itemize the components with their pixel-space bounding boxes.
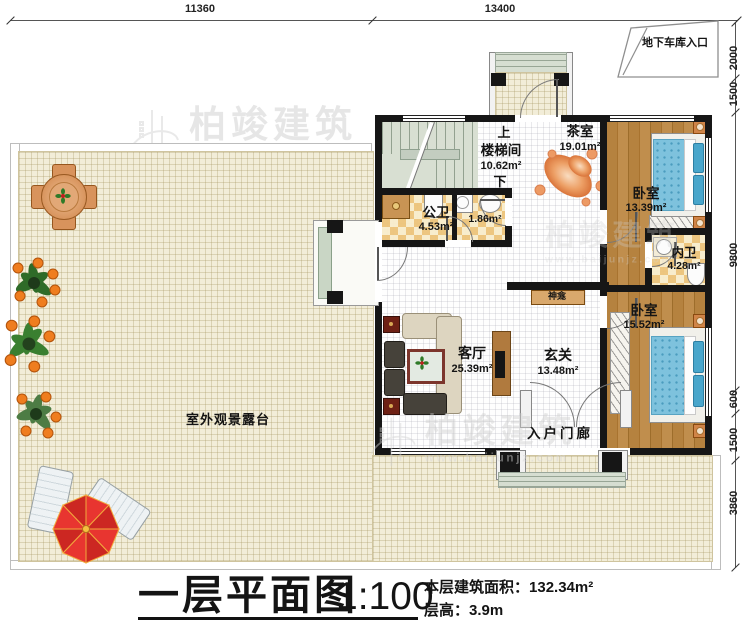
terrace-label: 室外观景露台 — [168, 413, 288, 427]
wall-foyer-north — [507, 282, 609, 290]
foyer-label: 玄关 — [528, 348, 588, 363]
coffee-table-plant-icon — [415, 356, 429, 370]
wall-innerbath-north — [645, 228, 712, 235]
stair-rail — [400, 149, 460, 160]
door-leaf — [556, 79, 558, 117]
floor-area-label: 本层建筑面积： — [424, 579, 529, 596]
entry-steps — [498, 472, 626, 488]
door-opening — [600, 210, 607, 244]
dim-top-right: 13400 — [450, 3, 550, 15]
pillow — [693, 375, 704, 407]
door-opening — [645, 242, 652, 268]
inner-bath-area: 4.28m² — [662, 261, 706, 272]
porch-column — [602, 452, 622, 472]
stair-up-label: 上 — [486, 126, 522, 140]
bedroom2-area: 15.52m² — [616, 320, 672, 332]
armchair — [403, 393, 447, 415]
foyer-area: 13.48m² — [528, 366, 588, 378]
porch-column — [500, 452, 520, 472]
dim-right-9800: 9800 — [728, 225, 742, 285]
window — [705, 138, 712, 212]
public-bath-area: 4.53m² — [412, 222, 460, 234]
bedroom1-area: 13.39m² — [620, 203, 672, 215]
watermark-brand: 柏竣建筑 — [189, 106, 357, 143]
dim-right-1500a: 1500 — [728, 64, 742, 124]
outdoor-table-set — [31, 164, 95, 228]
plant-icon — [2, 314, 58, 376]
stairwell-area: 10.62m² — [466, 161, 536, 173]
wall-bedroom2-north — [600, 285, 712, 292]
window — [610, 115, 694, 122]
floor-height-line: 层高：3.9m — [424, 599, 503, 620]
door-leaf — [635, 212, 637, 242]
side-table — [383, 316, 400, 333]
bay-window-glass — [318, 227, 332, 299]
garage-label: 地下车库入口 — [632, 38, 718, 50]
porch-post — [491, 73, 506, 86]
armchair — [384, 369, 405, 396]
inner-bath-label: 内卫 — [662, 247, 706, 260]
dim-top-left: 11360 — [150, 3, 250, 15]
armchair — [384, 341, 405, 368]
table-plant-icon — [55, 188, 71, 204]
bay-window-post — [327, 291, 343, 304]
stairwell-label: 楼梯间 — [464, 144, 538, 158]
bedroom1-label: 卧室 — [626, 187, 666, 201]
title-underline — [138, 617, 418, 620]
drawing-title: 一层平面图 — [138, 574, 358, 617]
door-leaf — [377, 247, 379, 280]
wall-bath-north — [380, 188, 512, 195]
entry-porch-label: 入户门廊 — [470, 427, 650, 441]
utility-area: 1.86m² — [462, 214, 508, 225]
public-bath-label: 公卫 — [412, 206, 460, 220]
living-room-area: 25.39m² — [444, 364, 500, 376]
tea-room-area: 19.01m² — [549, 142, 611, 154]
shrine-label: 神龛 — [531, 292, 583, 301]
floor-area-value: 132.34m² — [529, 579, 593, 596]
pillow — [693, 143, 704, 173]
window — [403, 115, 465, 122]
window — [705, 328, 712, 416]
umbrella-icon — [50, 492, 122, 566]
plant-icon — [10, 256, 62, 312]
drawing-scale: 1:100 — [336, 577, 434, 618]
door-leaf-post — [620, 390, 632, 428]
window — [391, 448, 485, 455]
stair-down-label: 下 — [482, 175, 518, 189]
pillow — [693, 175, 704, 205]
door-leaf — [480, 199, 505, 201]
bay-window-post — [327, 220, 343, 233]
tea-room-label: 茶室 — [556, 125, 604, 139]
door-opening — [600, 296, 607, 328]
pillow — [693, 341, 704, 373]
floor-plan: 柏竣建筑 www.baijunjz.com 柏竣建筑 www.baijunjz.… — [0, 0, 750, 629]
living-room-label: 客厅 — [444, 346, 500, 361]
dim-right-1500b: 1500 — [728, 410, 742, 470]
vanity-sink — [392, 202, 400, 210]
plant-icon — [12, 386, 64, 444]
porch-steps — [495, 52, 567, 74]
floor-area-line: 本层建筑面积：132.34m² — [424, 576, 593, 597]
dim-right-3860: 3860 — [728, 473, 742, 533]
side-table — [383, 398, 400, 415]
bedroom2-label: 卧室 — [622, 304, 666, 318]
